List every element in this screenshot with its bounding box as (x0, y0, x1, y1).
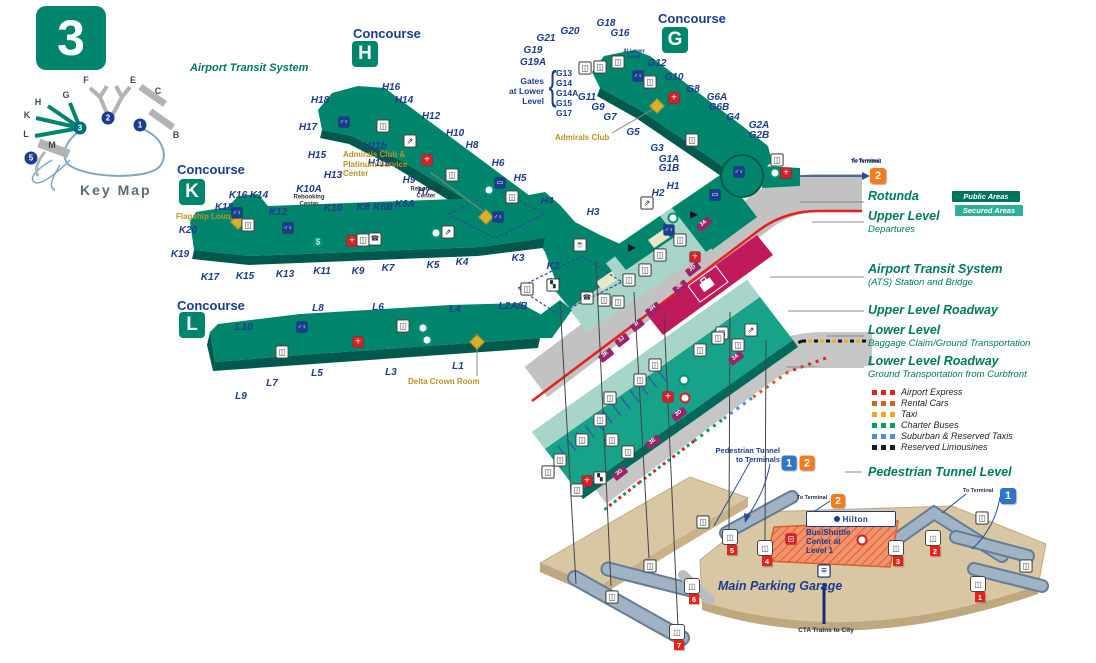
keymap-letter-M: M (48, 140, 56, 150)
concourse-letter-H: H (352, 41, 378, 67)
callout-airport-transit-system: Airport Transit System(ATS) Station and … (868, 263, 1003, 288)
callout-pedestrian-tunnel-level: Pedestrian Tunnel Level (868, 466, 1012, 480)
stairs-icon: ▚ (547, 279, 560, 292)
gate-label-L5: L5 (311, 369, 323, 379)
gates-at-lower-level-label: Gates at Lower Level (494, 76, 544, 107)
elevator-icon: ◫ (612, 296, 625, 309)
elevator-icon: ◫ (697, 516, 710, 529)
elevator-icon: ◫ (554, 454, 567, 467)
key-map-graphic (32, 84, 175, 190)
elevator-icon: ◫ (925, 530, 941, 546)
elevator-icon: ◫ (644, 76, 657, 89)
gate-label-K6B: K6B (373, 203, 393, 213)
gate-label-K17: K17 (201, 273, 219, 283)
screen-icon: ▭ (495, 178, 506, 189)
keymap-letter-K: K (24, 110, 31, 120)
medical-icon: + (690, 252, 701, 263)
gate-label-H18: H18 (311, 96, 329, 106)
elevator-number-badge: 6 (689, 594, 699, 604)
transport-legend-item: Charter Buses (872, 420, 959, 430)
elevator-number-badge: 2 (930, 546, 940, 556)
gate-label-K10: K10 (324, 204, 342, 214)
concourse-word-G: Concourse (658, 11, 726, 26)
to-terminal-text: To Terminal (963, 488, 993, 494)
bus-icon: ⊟ (786, 534, 797, 545)
elevator-icon: ◫ (669, 624, 685, 640)
elevator-icon: ◫ (242, 219, 255, 232)
elevator-icon: ◫ (771, 154, 784, 167)
restroom-icon: ♂♀ (339, 117, 350, 128)
gate-label-G1B: G1B (659, 164, 680, 174)
escalator-icon: ⇗ (404, 135, 417, 148)
gate-label-K4: K4 (456, 258, 469, 268)
gate-label-H14: H14 (395, 96, 413, 106)
gate-label-H15: H15 (308, 151, 326, 161)
transport-legend-item: Taxi (872, 409, 917, 419)
gate-label-L1: L1 (452, 362, 464, 372)
keymap-letter-H: H (35, 97, 42, 107)
stairs-icon: ▚ (594, 472, 607, 485)
gate-label-G5: G5 (626, 128, 639, 138)
keymap-letter-E: E (130, 75, 136, 85)
to-terminal-2-badge: 2 (800, 456, 815, 471)
concourse-letter-L: L (179, 312, 205, 338)
elevator-icon: ◫ (694, 344, 707, 357)
gate-label-L7: L7 (266, 379, 278, 389)
elevator-icon: ◫ (397, 320, 410, 333)
keymap-letter-L: L (23, 129, 29, 139)
elevator-icon: ◫ (684, 578, 700, 594)
amenity-label: Admirals Club & Platinum Service Center (343, 150, 407, 179)
gate-label-L6: L6 (372, 303, 384, 313)
restroom-icon: ♂♀ (232, 208, 243, 219)
elevator-icon: ◫ (579, 62, 592, 75)
info-icon (668, 213, 679, 224)
elevator-icon: ◫ (712, 332, 725, 345)
elevator-icon: ◫ (722, 529, 738, 545)
elevator-icon: ◫ (654, 249, 667, 262)
elevator-number-badge: 4 (762, 556, 772, 566)
keymap-letter-G: G (62, 90, 69, 100)
rebooking-center-label: Rebooking Center (411, 186, 442, 199)
elevator-icon: ◫ (976, 512, 989, 525)
gate-label-L2A-B: L2A/B (499, 302, 528, 312)
elevator-icon: ◫ (623, 274, 636, 287)
gate-label-H6: H6 (492, 159, 505, 169)
callout-rotunda: Rotunda (868, 190, 919, 204)
gate-label-L9: L9 (235, 392, 247, 402)
gate-label-K8: K8 (357, 203, 370, 213)
gate-label-H3: H3 (587, 208, 600, 218)
gate-label-H8: H8 (466, 141, 479, 151)
gate-label-L8: L8 (312, 304, 324, 314)
callout-lower-level-roadway: Lower Level RoadwayGround Transportation… (868, 355, 1027, 380)
elevator-icon: ◫ (649, 359, 662, 372)
elevator-number-badge: 7 (674, 640, 684, 650)
lower-level-gate-list: G13G14G14AG15G17 (556, 69, 578, 119)
rebooking-center-label: Rebooking Center (294, 194, 325, 207)
atm-icon: $ (313, 237, 324, 248)
to-terminal-1-badge: 1 (1000, 488, 1016, 504)
gate-label-H1: H1 (667, 182, 680, 192)
keymap-terminal-2: 2 (102, 112, 115, 125)
keymap-terminal-1: 1 (134, 119, 147, 132)
gate-label-K3: K3 (512, 254, 525, 264)
restroom-icon: ♂♀ (297, 322, 308, 333)
elevator-icon: ◫ (604, 392, 617, 405)
gate-label-H10: H10 (446, 129, 464, 139)
gate-label-G3: G3 (650, 144, 663, 154)
medical-icon: + (663, 392, 674, 403)
concourse-word-K: Concourse (177, 162, 245, 177)
elevator-icon: ◫ (594, 61, 607, 74)
phone-icon: ☎ (369, 233, 382, 246)
gate-label-H16: H16 (382, 83, 400, 93)
gate-label-H5: H5 (514, 174, 527, 184)
food-icon: ☕ (574, 239, 587, 252)
info-icon (679, 375, 690, 386)
elevator-icon: ◫ (970, 576, 986, 592)
elevator-icon: ◫ (521, 283, 534, 296)
elevator-icon: ◫ (1020, 560, 1033, 573)
gate-label-G8: G8 (686, 85, 699, 95)
gate-label-H13: H13 (324, 171, 342, 181)
keymap-terminal-3: 3 (74, 122, 87, 135)
train-icon: ≡ (818, 565, 831, 578)
transport-legend-item: Suburban & Reserved Taxis (872, 431, 1013, 441)
transport-legend-item: Reserved Limousines (872, 442, 988, 452)
elevator-icon: ◫ (732, 339, 745, 352)
gate-label-K19: K19 (171, 250, 189, 260)
main-parking-garage-label: Main Parking Garage (718, 579, 842, 593)
elevator-number-badge: 5 (727, 545, 737, 555)
restroom-icon: ♂♀ (633, 71, 644, 82)
elevator-icon: ◫ (606, 434, 619, 447)
keymap-letter-B: B (173, 130, 180, 140)
transport-legend-item: Airport Express (872, 387, 963, 397)
gate-label-K5: K5 (427, 261, 440, 271)
gate-label-K7: K7 (382, 264, 395, 274)
gate-label-K12: K12 (269, 208, 287, 218)
elevator-icon: ◫ (612, 56, 625, 69)
cta-trains-label: CTA Trains to City (798, 627, 854, 634)
secured-areas-badge: Secured Areas (955, 205, 1023, 216)
screen-icon: ▭ (710, 190, 721, 201)
gate-label-H2: H2 (652, 189, 665, 199)
callout-upper-level: Upper LevelDepartures (868, 210, 940, 235)
transport-legend-item: Rental Cars (872, 398, 949, 408)
key-map-title: Key Map (80, 182, 152, 198)
small-note: At Lower Level (623, 49, 644, 61)
airport-transit-system-label: Airport Transit System (190, 62, 308, 74)
elevator-icon: ◫ (686, 134, 699, 147)
gate-label-G20: G20 (561, 27, 580, 37)
restroom-icon: ♂♀ (734, 167, 745, 178)
terminal-3-logo: 3 (36, 6, 106, 70)
elevator-icon: ◫ (576, 434, 589, 447)
gate-label-G10: G10 (665, 73, 684, 83)
gate-label-G2B: G2B (749, 131, 770, 141)
gate-label-G12: G12 (648, 59, 667, 69)
keymap-letter-C: C (155, 86, 162, 96)
to-terminal-text: To Terminal (851, 159, 881, 165)
gate-label-G7: G7 (603, 113, 616, 123)
gate-label-K11: K11 (313, 267, 331, 277)
gate-label-H17: H17 (299, 123, 317, 133)
to-terminal-text: To Terminal (797, 495, 827, 501)
info-icon (422, 335, 433, 346)
elevator-icon: ◫ (674, 234, 687, 247)
info-icon (770, 168, 781, 179)
escalator-icon: ⇗ (442, 226, 455, 239)
elevator-icon: ◫ (594, 414, 607, 427)
info-icon (431, 228, 442, 239)
concourse-letter-G: G (662, 27, 688, 53)
concourse-letter-K: K (179, 179, 205, 205)
bus-shuttle-center-label: Bus/Shuttle Center at Level 1 (806, 528, 858, 556)
gate-label-G21: G21 (537, 34, 556, 44)
to-terminal-2-badge: 2 (831, 494, 845, 508)
gate-label-L3: L3 (385, 368, 397, 378)
target-icon (857, 535, 868, 546)
elevator-icon: ◫ (757, 540, 773, 556)
elevator-icon: ◫ (888, 540, 904, 556)
elevator-icon: ◫ (598, 294, 611, 307)
gate-label-K6A: K6A (395, 200, 415, 210)
elevator-icon: ◫ (446, 169, 459, 182)
gate-label-G19A: G19A (520, 58, 546, 68)
keymap-terminal-5: 5 (25, 152, 38, 165)
elevator-icon: ◫ (276, 346, 289, 359)
elevator-icon: ◫ (634, 374, 647, 387)
hilton-logo-icon (834, 516, 840, 522)
elevator-number-badge: 1 (975, 592, 985, 602)
gate-label-K15: K15 (236, 272, 254, 282)
elevator-icon: ◫ (377, 120, 390, 133)
elevator-icon: ◫ (571, 484, 584, 497)
medical-icon: + (353, 337, 364, 348)
gate-label-H4: H4 (541, 197, 554, 207)
amenity-label: Admirals Club (555, 133, 609, 143)
gate-label-K9: K9 (352, 267, 365, 277)
terminal3-map: 3 Key Map Airport Transit System Gates a… (0, 0, 1096, 663)
concourse-word-H: Concourse (353, 26, 421, 41)
elevator-icon: ◫ (542, 466, 555, 479)
amenity-label: Delta Crown Room (408, 377, 480, 387)
elevator-number-badge: 3 (893, 556, 903, 566)
restroom-icon: ♂♀ (493, 212, 504, 223)
elevator-icon: ◫ (622, 446, 635, 459)
pedestrian-tunnel-to-terminals-label: Pedestrian Tunnel to Terminals (700, 446, 780, 464)
gate-label-K16: K16 (229, 191, 247, 201)
phone-icon: ☎ (581, 292, 594, 305)
target-icon (680, 393, 691, 404)
elevator-icon: ◫ (606, 591, 619, 604)
keymap-letter-F: F (83, 75, 89, 85)
gate-label-K2: K2 (547, 262, 560, 272)
gate-label-G16: G16 (611, 29, 630, 39)
gate-label-K20: K20 (179, 226, 197, 236)
public-areas-badge: Public Areas (952, 191, 1020, 202)
restroom-icon: ♂♀ (283, 223, 294, 234)
hilton-hotel-label: Hilton (806, 511, 896, 527)
callout-lower-level: Lower LevelBaggage Claim/Ground Transpor… (868, 324, 1030, 349)
concourse-word-L: Concourse (177, 298, 245, 313)
info-icon (418, 323, 429, 334)
medical-icon: + (422, 155, 433, 166)
gate-label-G4: G4 (726, 113, 739, 123)
to-terminal-2-badge: 2 (870, 168, 886, 184)
elevator-icon: ◫ (639, 264, 652, 277)
elevator-icon: ◫ (644, 560, 657, 573)
medical-icon: + (781, 168, 792, 179)
security-icon: ▶ (627, 243, 638, 254)
gate-label-L4: L4 (449, 305, 461, 315)
gate-label-H12: H12 (422, 112, 440, 122)
gate-label-K14: K14 (250, 191, 268, 201)
escalator-icon: ⇗ (745, 324, 758, 337)
to-terminal-1-badge: 1 (782, 456, 797, 471)
gate-label-G19: G19 (524, 46, 543, 56)
callout-upper-level-roadway: Upper Level Roadway (868, 304, 998, 318)
info-icon (484, 185, 495, 196)
gate-label-L10: L10 (235, 323, 252, 333)
elevator-icon: ◫ (506, 191, 519, 204)
security-icon: ▶ (689, 210, 700, 221)
gate-label-K13: K13 (276, 270, 294, 280)
escalator-icon: ⇗ (641, 197, 654, 210)
medical-icon: + (669, 93, 680, 104)
